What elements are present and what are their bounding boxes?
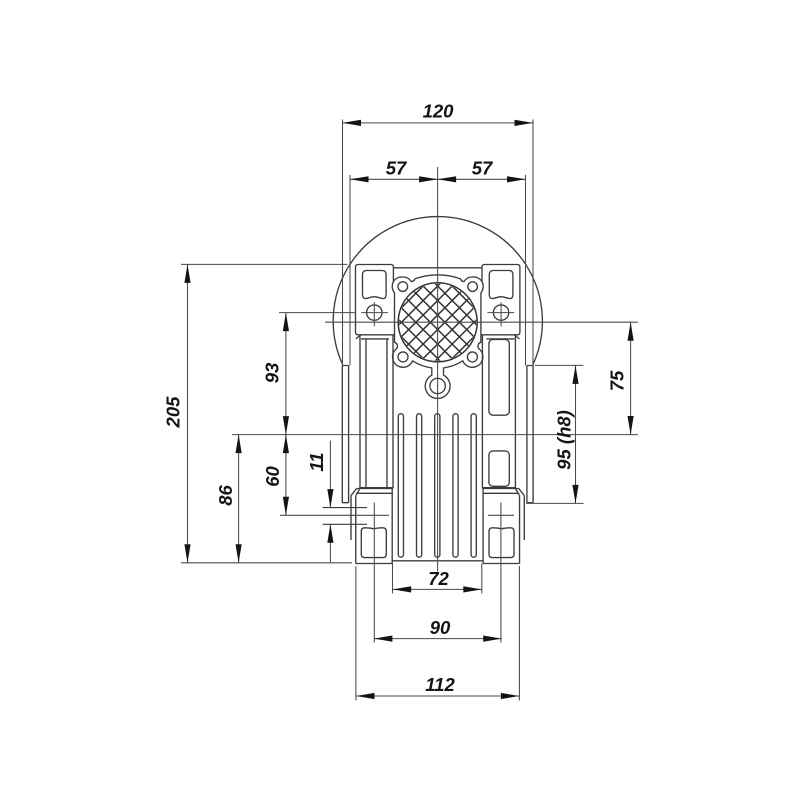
svg-text:112: 112 xyxy=(425,674,455,695)
svg-text:57: 57 xyxy=(386,158,408,179)
svg-text:57: 57 xyxy=(472,158,494,179)
svg-text:95 (h8): 95 (h8) xyxy=(554,410,575,470)
svg-text:205: 205 xyxy=(163,396,184,429)
svg-text:93: 93 xyxy=(262,362,283,383)
svg-text:72: 72 xyxy=(428,568,449,589)
svg-text:90: 90 xyxy=(430,617,451,638)
svg-text:60: 60 xyxy=(262,466,283,487)
svg-text:86: 86 xyxy=(215,485,236,506)
svg-text:120: 120 xyxy=(423,101,455,122)
svg-text:75: 75 xyxy=(607,370,628,391)
svg-text:11: 11 xyxy=(306,452,327,471)
